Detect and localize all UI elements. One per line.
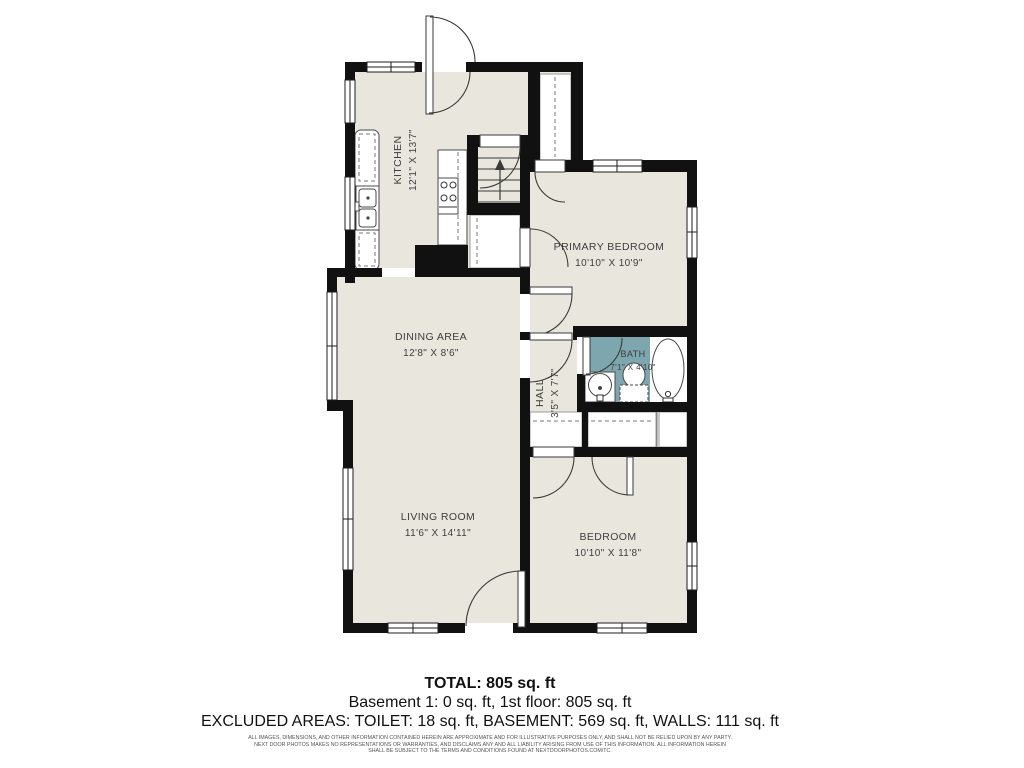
primary-bedroom-label: PRIMARY BEDROOM [554,241,665,253]
total-area: TOTAL: 805 sq. ft [0,674,980,693]
door-leaf [530,333,572,340]
bedroom-label: BEDROOM [579,531,636,543]
kitchen-dims: 12'1" X 13'7" [408,129,419,191]
sink-drain [366,196,369,199]
disclaimer-line: NEXT DOOR PHOTOS MAKES NO REPRESENTATION… [0,742,980,749]
toilet-tank [620,385,648,402]
sink-drain [598,386,602,390]
living-label: LIVING ROOM [401,511,475,523]
floor-areas: Basement 1: 0 sq. ft, 1st floor: 805 sq.… [0,693,980,712]
floor-plan-drawing: KITCHEN 12'1" X 13'7" DINING AREA 12'8" … [0,0,1024,768]
door-leaf [583,337,590,375]
primary-bedroom-dims: 10'10" X 10'9" [575,258,643,269]
floor-plan-page: KITCHEN 12'1" X 13'7" DINING AREA 12'8" … [0,0,1024,768]
kitchen-label: KITCHEN [392,136,404,185]
door-leaf [533,447,574,457]
bedroom-dims: 10'10" X 11'8" [575,548,642,559]
hall-dims: 3'5" X 7'7" [550,368,561,418]
bath-dims: 7'1" X 4'10" [610,363,656,372]
door-leaf [627,457,633,495]
door-leaf [520,228,530,267]
excluded-areas: EXCLUDED AREAS: TOILET: 18 sq. ft, BASEM… [0,712,980,731]
door-leaf [530,287,572,294]
dining-dims: 12'8" X 8'6" [403,348,459,359]
tub-faucet [663,398,673,402]
bath-sink [589,374,612,397]
door-arc [430,17,475,62]
area-summary: TOTAL: 805 sq. ft Basement 1: 0 sq. ft, … [0,674,980,755]
sink-drain [366,216,369,219]
living-dims: 11'6" X 14'11" [405,528,471,539]
sink-faucet [597,395,603,401]
dining-label: DINING AREA [395,331,467,343]
bathtub [652,339,684,399]
door-leaf [535,160,565,172]
linen-closet [659,412,687,447]
disclaimer-line: SHALL BE SUBJECT TO THE TERMS AND CONDIT… [0,748,980,755]
door-leaf [480,135,520,147]
door-leaf [426,16,433,114]
door-leaf [518,571,525,627]
room-dining-living [332,273,525,628]
bath-label: BATH [621,349,646,359]
hall-label: HALL [534,379,546,407]
disclaimer-line: ALL IMAGES, DIMENSIONS, AND OTHER INFORM… [0,735,980,742]
bedroom-closet [588,412,656,447]
disclaimer: ALL IMAGES, DIMENSIONS, AND OTHER INFORM… [0,735,980,755]
